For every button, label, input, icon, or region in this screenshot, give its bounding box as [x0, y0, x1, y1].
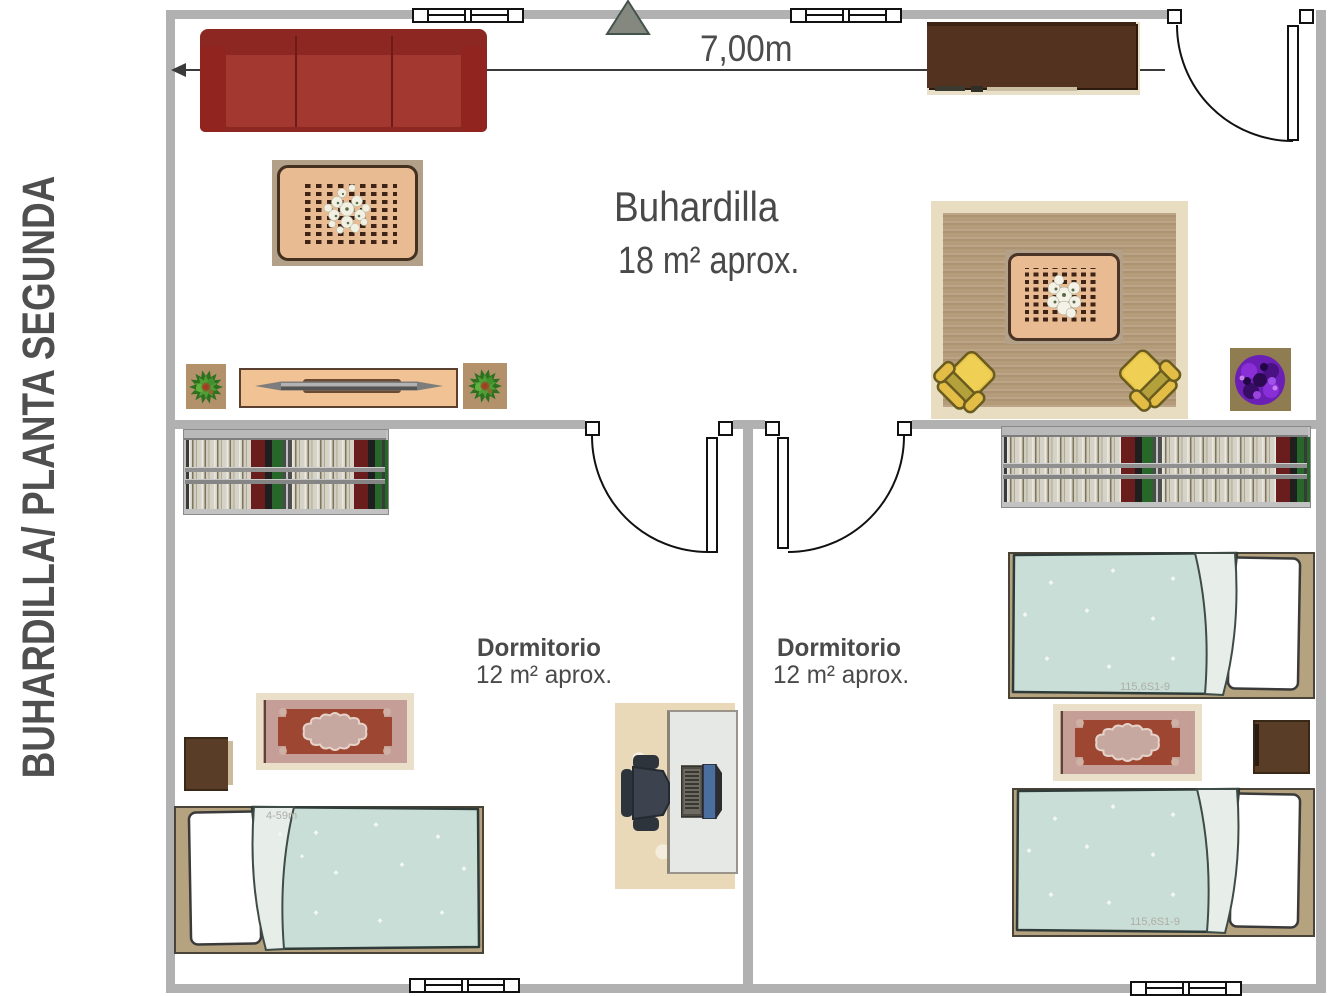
- svg-text:115,6S1-9: 115,6S1-9: [1120, 681, 1170, 693]
- svg-text:115,6S1-9: 115,6S1-9: [1130, 916, 1180, 928]
- svg-text:4-59m: 4-59m: [266, 810, 297, 822]
